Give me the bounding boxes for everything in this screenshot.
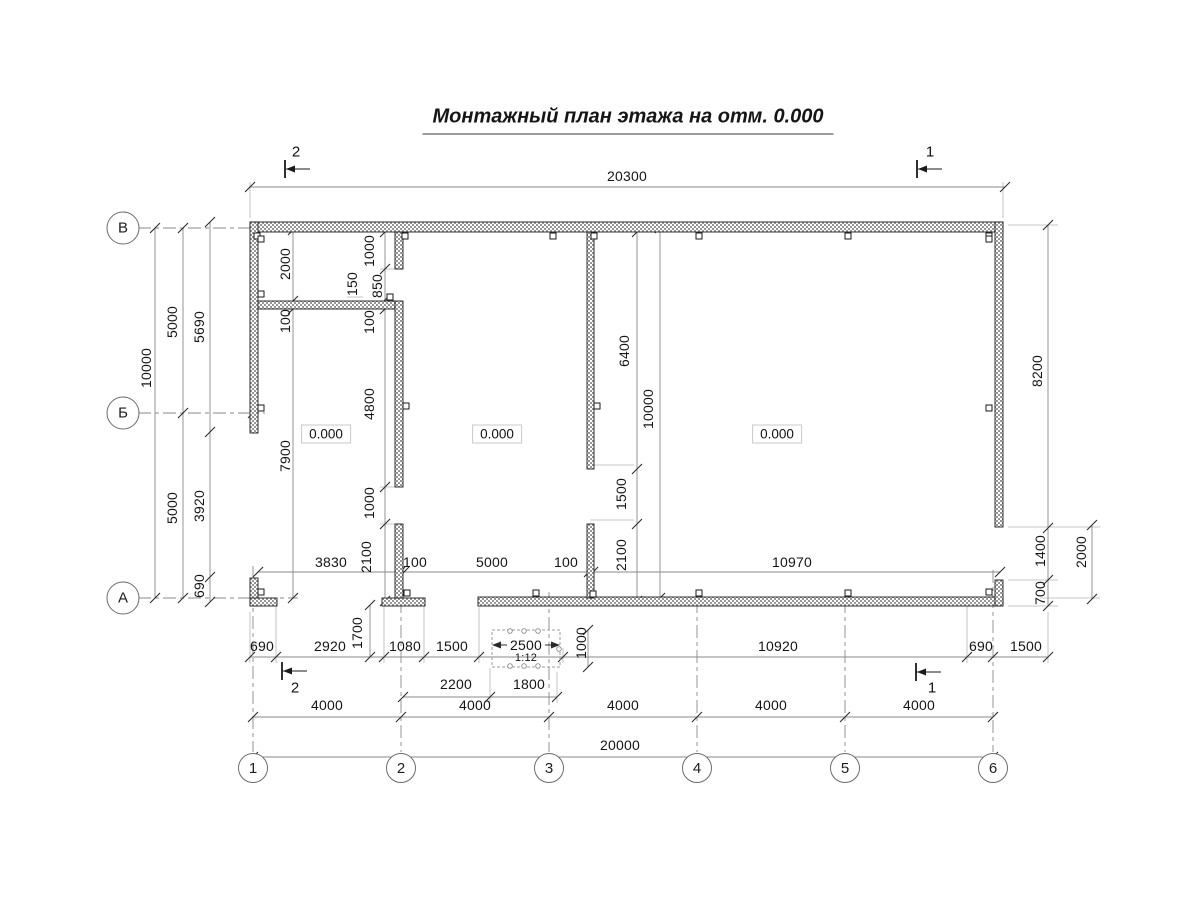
- dimension-label: 700: [1032, 581, 1048, 605]
- level-label: 0.000: [472, 425, 522, 444]
- row-axis-Б: Б: [107, 397, 140, 430]
- dimension-label: 5000: [164, 492, 180, 524]
- dimension-label: 10000: [138, 348, 154, 388]
- dimension-label: 100: [403, 554, 427, 570]
- dimension-label: 4000: [459, 697, 491, 713]
- dimension-label: 1000: [361, 487, 377, 519]
- floor-plan-canvas: [0, 0, 1200, 900]
- dimension-label: 100: [554, 554, 578, 570]
- dimension-label: 100: [361, 310, 377, 334]
- dimension-label: 4000: [755, 697, 787, 713]
- dimension-label: 10000: [640, 389, 656, 429]
- floor-plan: Монтажный план этажа на отм. 0.000 20300…: [0, 0, 1200, 900]
- col-axis-1: 1: [238, 753, 268, 783]
- ramp-length-label: 2500: [510, 637, 542, 653]
- dimension-label: 10970: [772, 554, 812, 570]
- dimension-label: 690: [969, 638, 993, 654]
- dimension-label: 1000: [361, 235, 377, 267]
- row-axis-В: В: [107, 212, 140, 245]
- dimension-label: 2100: [358, 541, 374, 573]
- dimension-label: 4800: [361, 388, 377, 420]
- dimension-label: 1500: [1010, 638, 1042, 654]
- col-axis-6: 6: [978, 753, 1008, 783]
- dimension-label: 1500: [436, 638, 468, 654]
- dimension-label: 4000: [903, 697, 935, 713]
- dimension-label: 1700: [349, 617, 365, 649]
- dimension-label: 5690: [191, 311, 207, 343]
- dimension-label: 5000: [164, 306, 180, 338]
- level-label: 0.000: [301, 425, 351, 444]
- dimension-label: 2100: [613, 539, 629, 571]
- dimension-label: 3920: [191, 490, 207, 522]
- ramp-slope-label: 1:12: [515, 652, 537, 664]
- dimension-label: 2000: [1073, 536, 1089, 568]
- section-marker-1-bottom: [916, 663, 941, 681]
- extension-lines: [250, 182, 1100, 703]
- section-label: 2: [292, 144, 300, 161]
- dimension-label: 5000: [476, 554, 508, 570]
- drawing-title: Монтажный план этажа на отм. 0.000: [423, 106, 834, 135]
- dimension-label: 20000: [600, 737, 640, 753]
- dimension-label: 3830: [315, 554, 347, 570]
- row-axis-А: А: [107, 582, 140, 615]
- dimension-label: 7900: [277, 440, 293, 472]
- dimension-label: 2000: [277, 248, 293, 280]
- dimension-label: 2920: [314, 638, 346, 654]
- dimension-label: 1400: [1032, 535, 1048, 567]
- col-axis-3: 3: [534, 753, 564, 783]
- dimension-label: 1500: [613, 478, 629, 510]
- dimension-label: 4000: [607, 697, 639, 713]
- dimension-label: 1080: [389, 638, 421, 654]
- dimension-label: 1000: [573, 627, 589, 659]
- section-marker-1-top: [917, 160, 942, 178]
- col-axis-2: 2: [386, 753, 416, 783]
- section-label: 1: [928, 680, 936, 697]
- dimension-label: 850: [369, 274, 385, 298]
- section-marker-2-top: [285, 160, 310, 178]
- level-label: 0.000: [752, 425, 802, 444]
- dimension-label: 4000: [311, 697, 343, 713]
- dimension-label: 2200: [440, 676, 472, 692]
- col-axis-4: 4: [682, 753, 712, 783]
- section-marker-2-bottom: [282, 662, 307, 680]
- dimension-label: 690: [191, 574, 207, 598]
- dimension-label: 150: [344, 272, 360, 296]
- dimension-label: 8200: [1029, 355, 1045, 387]
- col-axis-5: 5: [830, 753, 860, 783]
- dimension-label: 20300: [607, 168, 647, 184]
- dimension-label: 690: [250, 638, 274, 654]
- section-label: 2: [291, 680, 299, 697]
- dimension-label: 100: [277, 309, 293, 333]
- dimension-label: 1800: [513, 676, 545, 692]
- dimension-label: 6400: [616, 335, 632, 367]
- section-label: 1: [926, 144, 934, 161]
- dimension-label: 10920: [758, 638, 798, 654]
